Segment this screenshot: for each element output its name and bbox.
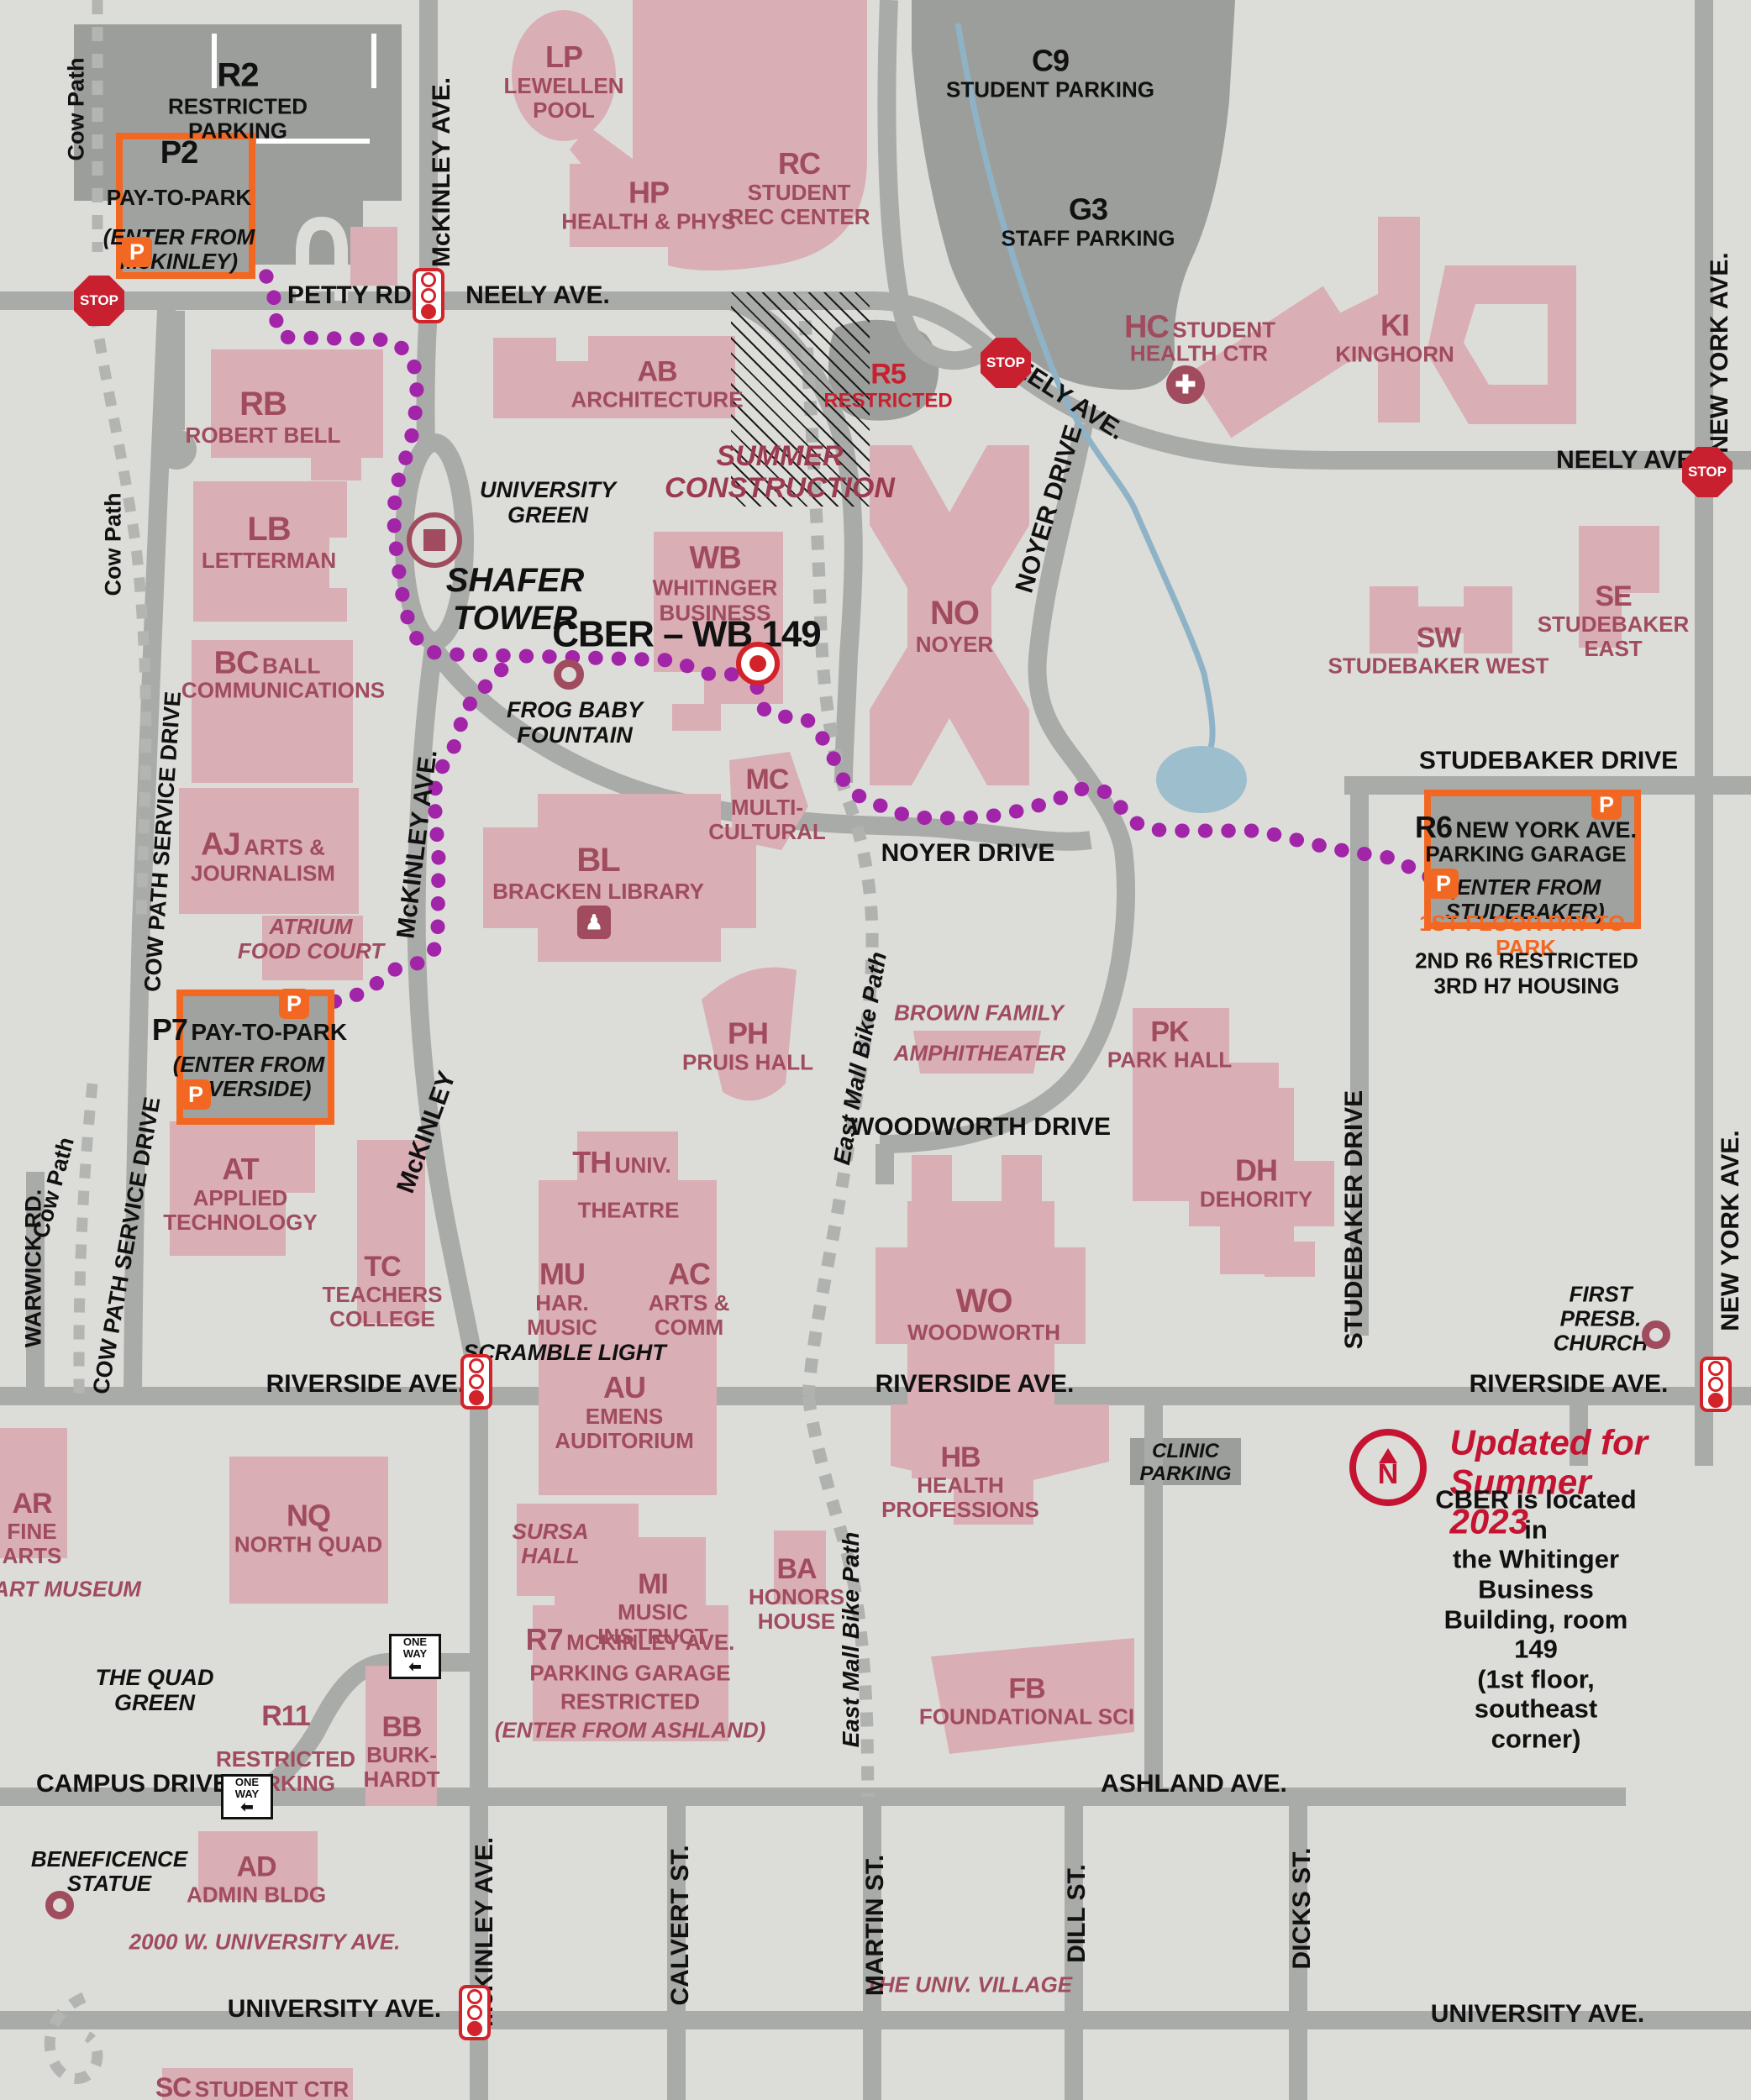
- r6-p-icon-left: P: [1428, 869, 1459, 899]
- wo-label: WOWOODWORTH: [907, 1268, 1060, 1345]
- amphitheater-label1: BROWN FAMILY: [894, 1000, 1064, 1025]
- wb-label: WBWHITINGER BUSINESS: [653, 526, 778, 626]
- north-compass-icon: N: [1349, 1429, 1427, 1506]
- dicks-label: DICKS ST.: [1288, 1847, 1317, 1969]
- r7-note: (ENTER FROM ASHLAND): [495, 1718, 766, 1742]
- cber-label: CBER – WB 149: [552, 613, 821, 654]
- shafer-tower-icon: [407, 512, 462, 568]
- riverside-label-3: RIVERSIDE AVE.: [1470, 1370, 1669, 1399]
- hc-label2: HEALTH CTR: [1130, 341, 1268, 365]
- university-green-label: UNIVERSITY GREEN: [480, 477, 616, 528]
- stop-sign-petty: STOP: [74, 276, 124, 326]
- r7-label-line2: PARKING GARAGE: [529, 1661, 730, 1685]
- sc-label: SC STUDENT CTR: [155, 2073, 349, 2100]
- stop-sign-neely-ny: STOP: [1682, 447, 1733, 497]
- r6-floor3: 3RD H7 HOUSING: [1433, 974, 1619, 998]
- traffic-light-petty: [413, 268, 444, 323]
- c9-label: C9STUDENT PARKING: [946, 29, 1154, 102]
- au-label: AUEMENS AUDITORIUM: [555, 1356, 694, 1453]
- traffic-light-university: [459, 1985, 491, 2040]
- hb-label: HBHEALTH PROFESSIONS: [881, 1426, 1039, 1522]
- one-way-sign-nq: ONE WAY⬅: [389, 1634, 441, 1679]
- frog-baby-icon: [554, 659, 584, 690]
- mi-label: MIMUSIC INSTRUCT: [597, 1553, 707, 1649]
- address-2000-label: 2000 W. UNIVERSITY AVE.: [129, 1929, 401, 1954]
- p2-p-icon: P: [122, 237, 152, 267]
- th-label2: THEATRE: [578, 1198, 680, 1222]
- studebaker-label-vert: STUDEBAKER DRIVE: [1340, 1090, 1369, 1349]
- at-label: ATAPPLIED TECHNOLOGY: [163, 1137, 317, 1235]
- campus-drive-label: CAMPUS DRIVE: [36, 1770, 229, 1798]
- r5-label: R5RESTRICTED: [823, 344, 952, 413]
- new-york-label-2: NEW YORK AVE.: [1717, 1130, 1745, 1331]
- rc-label: RCSTUDENT REC CENTER: [728, 132, 870, 229]
- stop-sign-neely: STOP: [981, 338, 1031, 388]
- neely-label-3: NEELY AVE.: [1556, 446, 1701, 475]
- amphitheater-label2: AMPHITHEATER: [894, 1041, 1066, 1065]
- beneficence-icon: [45, 1891, 74, 1919]
- campus-map: P P P P P ✚ ♟ N STOP STOP STOP ONE WAY⬅ …: [0, 0, 1751, 2100]
- p7-p-icon-bottom: P: [181, 1079, 211, 1110]
- studebaker-label-horiz: STUDEBAKER DRIVE: [1419, 747, 1678, 775]
- health-center-cross-icon: ✚: [1166, 365, 1205, 404]
- se-label: SESTUDEBAKER EAST: [1538, 565, 1690, 661]
- ashland-label: ASHLAND AVE.: [1101, 1770, 1287, 1798]
- ba-label: BAHONORS HOUSE: [749, 1538, 844, 1634]
- mc-label: MCMULTI- CULTURAL: [708, 748, 826, 844]
- ph-label: PHPRUIS HALL: [682, 1001, 813, 1074]
- mckinley-mid1: [425, 310, 429, 443]
- nq-label: NQNORTH QUAD: [234, 1483, 382, 1557]
- neely-label-1: NEELY AVE.: [465, 281, 610, 310]
- bldg-small1: [350, 227, 397, 286]
- traffic-light-scramble: [460, 1354, 492, 1410]
- no-label: NONOYER: [916, 580, 993, 657]
- clinic-label: CLINIC PARKING: [1140, 1441, 1232, 1486]
- atrium-label: ATRIUM FOOD COURT: [238, 915, 384, 963]
- bc-label2: COMMUNICATIONS: [181, 678, 385, 702]
- scramble-light-label: SCRAMBLE LIGHT: [463, 1340, 665, 1365]
- calvert-label: CALVERT ST.: [666, 1845, 695, 2005]
- cber-destination-marker: [736, 642, 780, 685]
- art-museum-label: ART MUSEUM: [0, 1577, 141, 1601]
- ab-label: ABARCHITECTURE: [571, 340, 743, 412]
- bb-label: BBBURK- HARDT: [364, 1696, 440, 1792]
- bldg-wb-tab: [672, 704, 721, 731]
- ad-label: ADADMIN BLDG: [187, 1835, 326, 1907]
- sw-label: SWSTUDEBAKER WEST: [1328, 606, 1549, 678]
- aj-label: AJ ARTS &: [201, 827, 325, 864]
- summer-construction-label: SUMMER CONSTRUCTION: [665, 440, 895, 504]
- east-mall-label-2: East Mall Bike Path: [838, 1532, 865, 1748]
- r6-p-icon-right: P: [1591, 790, 1622, 820]
- sursa-label: SURSA HALL: [512, 1520, 588, 1568]
- pond: [1156, 746, 1247, 813]
- univ-village-label: THE UNIV. VILLAGE: [865, 1972, 1072, 1997]
- woodworth-label: WOODWORTH DRIVE: [850, 1113, 1111, 1142]
- martin-label: MARTIN ST.: [861, 1855, 890, 1996]
- mu-label: MUHAR. MUSIC: [527, 1242, 597, 1340]
- cber-info-text: CBER is located in the Whitinger Busines…: [1428, 1485, 1643, 1755]
- first-presb-icon: [1642, 1320, 1670, 1349]
- traffic-light-riverside-ny: [1700, 1357, 1732, 1412]
- riverside-label-2: RIVERSIDE AVE.: [875, 1370, 1075, 1399]
- r7-label-line3: RESTRICTED: [560, 1689, 700, 1714]
- cow-path-label-2: Cow Path: [101, 492, 127, 596]
- aj-label2: JOURNALISM: [191, 861, 335, 885]
- mckinley-label-top: McKINLEY AVE.: [428, 77, 456, 267]
- frog-baby-label: FROG BABY FOUNTAIN: [507, 697, 643, 748]
- p7-p-icon-top: P: [279, 989, 309, 1019]
- quad-green-label: THE QUAD GREEN: [96, 1665, 214, 1715]
- riverside-label-1: RIVERSIDE AVE.: [266, 1370, 465, 1399]
- dill-label: DILL ST.: [1063, 1864, 1091, 1963]
- g3-label: G3STAFF PARKING: [1001, 177, 1175, 250]
- university-label-1: UNIVERSITY AVE.: [228, 1995, 442, 2024]
- dh-label: DHDEHORITY: [1200, 1138, 1312, 1211]
- r6-floor2: 2ND R6 RESTRICTED: [1415, 948, 1638, 973]
- lp-label: LPLEWELLEN POOL: [504, 25, 624, 123]
- hp-label: HPHEALTH & PHYS: [561, 160, 736, 234]
- ar-label: ARFINE ARTS: [3, 1473, 62, 1568]
- th-label: TH UNIV.: [572, 1146, 670, 1179]
- one-way-sign-campus: ONE WAY⬅: [221, 1774, 273, 1819]
- shafer-tower-label: SHAFER TOWER: [446, 562, 584, 638]
- lb-label: LBLETTERMAN: [202, 496, 336, 573]
- tc-label: TCTEACHERS COLLEGE: [322, 1236, 442, 1331]
- university-label-2: UNIVERSITY AVE.: [1431, 2000, 1645, 2029]
- pk-label: PKPARK HALL: [1107, 1000, 1232, 1072]
- beneficence-label: BENEFICENCE STATUE: [31, 1847, 187, 1896]
- rb-label: RBROBERT BELL: [186, 370, 341, 448]
- noyer-label-horiz: NOYER DRIVE: [881, 839, 1055, 868]
- ki-label: KIKINGHORN: [1335, 293, 1454, 366]
- bc-label: BC BALL: [214, 646, 321, 682]
- cow-path-label-1: Cow Path: [64, 57, 90, 160]
- fb-label: FBFOUNDATIONAL SCI: [919, 1657, 1134, 1729]
- ac-label: ACARTS & COMM: [649, 1242, 730, 1340]
- petty-rd-label: PETTY RD.: [287, 281, 418, 310]
- library-icon: ♟: [577, 906, 611, 939]
- bl-label: BLBRACKEN LIBRARY: [492, 827, 704, 904]
- new-york-label-1: NEW YORK AVE.: [1706, 252, 1734, 453]
